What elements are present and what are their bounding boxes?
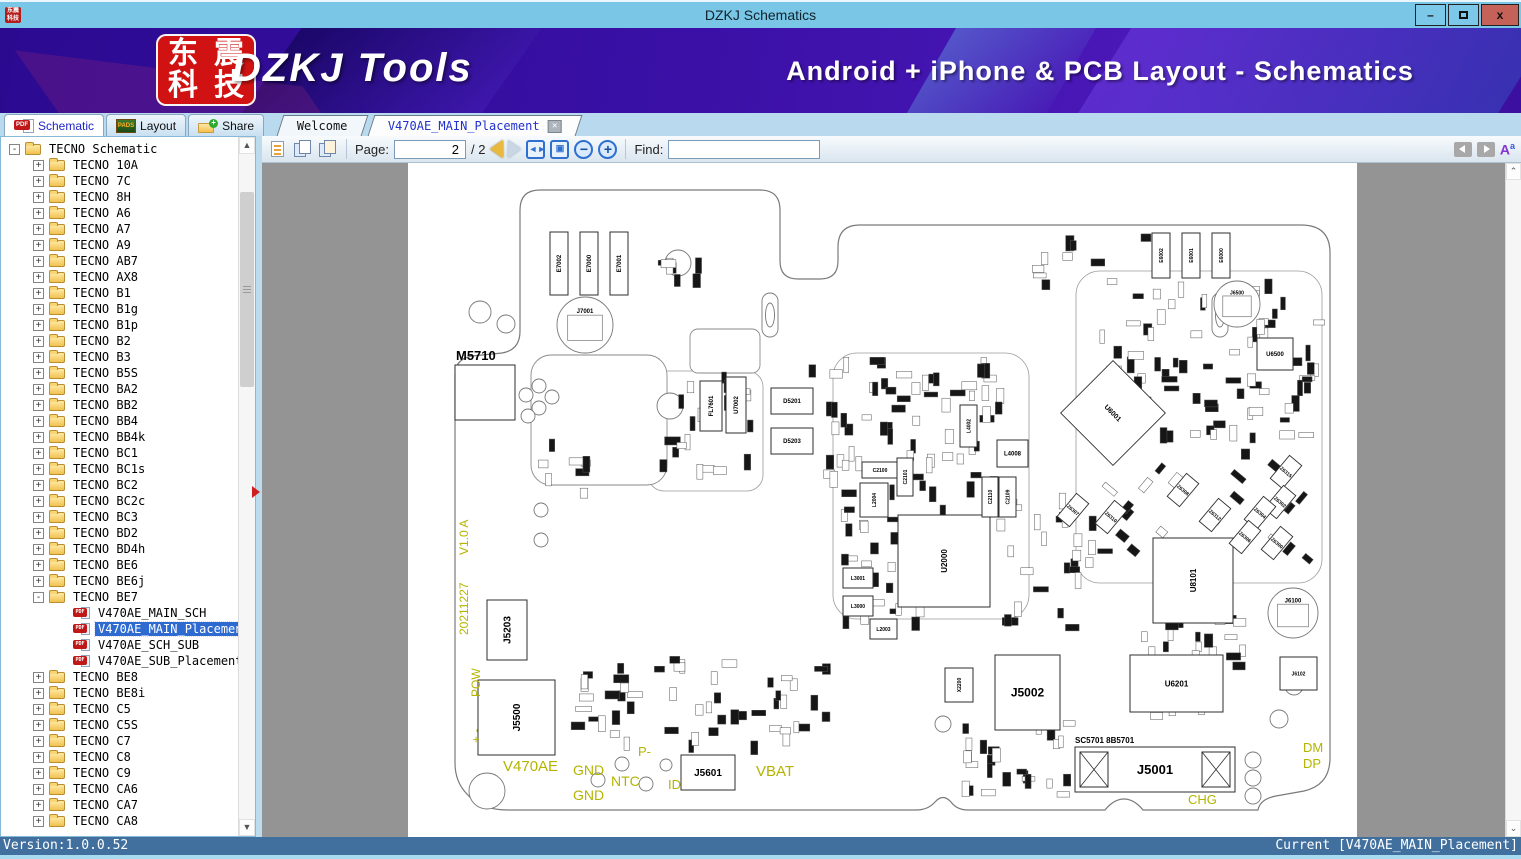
tree: -TECNO Schematic+TECNO 10A+TECNO 7C+TECN… xyxy=(1,141,238,836)
pdf-icon: PDF xyxy=(14,119,34,133)
folder-icon xyxy=(49,464,65,475)
tree-item-tecno-8h[interactable]: +TECNO 8H xyxy=(1,189,238,205)
expand-icon[interactable]: + xyxy=(33,768,44,779)
tree-item-tecno-c5[interactable]: +TECNO C5 xyxy=(1,701,238,717)
share-folder-icon: + xyxy=(198,119,218,133)
svg-text:DP: DP xyxy=(1303,756,1321,771)
expand-icon[interactable]: + xyxy=(33,496,44,507)
page-total: / 2 xyxy=(471,142,485,157)
svg-text:+ -: + - xyxy=(469,729,483,743)
expand-icon[interactable]: + xyxy=(33,208,44,219)
svg-text:20211227: 20211227 xyxy=(457,582,471,635)
tree-item-tecno-c9[interactable]: +TECNO C9 xyxy=(1,765,238,781)
expand-icon[interactable]: + xyxy=(33,320,44,331)
expand-icon[interactable]: + xyxy=(33,432,44,443)
svg-text:FL7601: FL7601 xyxy=(709,395,715,416)
expand-icon[interactable]: + xyxy=(33,192,44,203)
snapshot-tool-icon[interactable] xyxy=(293,139,313,159)
svg-text:J6500: J6500 xyxy=(1230,290,1244,296)
svg-text:GND: GND xyxy=(573,762,604,778)
folder-icon xyxy=(49,256,65,267)
doc-tab-v470ae_main_placement[interactable]: V470AE_MAIN_Placement✕ xyxy=(367,115,582,136)
svg-text:L4008: L4008 xyxy=(1004,452,1022,458)
brand-banner: 东震 科技 DZKJ Tools Android + iPhone & PCB … xyxy=(0,28,1521,113)
tree-item-tecno-bc2c[interactable]: +TECNO BC2c xyxy=(1,493,238,509)
svg-text:D5203: D5203 xyxy=(783,439,801,445)
collapse-icon[interactable]: - xyxy=(33,592,44,603)
find-label: Find: xyxy=(634,142,663,157)
zoom-in-button[interactable]: + xyxy=(598,140,617,159)
tree-item-tecno-be8[interactable]: +TECNO BE8 xyxy=(1,669,238,685)
folder-icon xyxy=(49,528,65,539)
tab-layout[interactable]: PADSLayout xyxy=(106,114,186,136)
folder-icon xyxy=(49,752,65,763)
viewer-scrollbar[interactable]: ⌃ ⌄ xyxy=(1505,163,1521,837)
folder-icon xyxy=(49,480,65,491)
svg-text:D5201: D5201 xyxy=(783,399,801,405)
tree-item-tecno-bc3[interactable]: +TECNO BC3 xyxy=(1,509,238,525)
expand-icon[interactable]: + xyxy=(33,288,44,299)
doc-tab-welcome[interactable]: Welcome xyxy=(277,115,368,136)
svg-text:J5500: J5500 xyxy=(512,703,523,731)
tab-share[interactable]: +Share xyxy=(188,114,264,136)
expand-icon[interactable]: + xyxy=(33,816,44,827)
svg-text:V1.0 A: V1.0 A xyxy=(457,520,471,555)
tree-item-tecno-be8i[interactable]: +TECNO BE8i xyxy=(1,685,238,701)
tree-item-tecno-a9[interactable]: +TECNO A9 xyxy=(1,237,238,253)
folder-icon xyxy=(49,400,65,411)
folder-icon xyxy=(49,800,65,811)
svg-text:U8101: U8101 xyxy=(1189,568,1198,592)
tree-item-tecno-10a[interactable]: +TECNO 10A xyxy=(1,157,238,173)
ribbon-tabs: PDFSchematicPADSLayout+Share xyxy=(4,114,266,136)
expand-icon[interactable]: + xyxy=(33,544,44,555)
tree-item-tecno-b3[interactable]: +TECNO B3 xyxy=(1,349,238,365)
svg-text:U2000: U2000 xyxy=(940,549,949,573)
maximize-button[interactable] xyxy=(1448,4,1479,26)
folder-icon xyxy=(49,224,65,235)
tree-item-v470ae-sub-placement[interactable]: PDFV470AE_SUB_Placement xyxy=(1,653,238,669)
svg-text:J5203: J5203 xyxy=(503,616,514,644)
find-input[interactable] xyxy=(668,140,820,159)
svg-text:M5710: M5710 xyxy=(456,348,496,363)
expand-icon[interactable]: + xyxy=(33,560,44,571)
svg-text:C2101: C2101 xyxy=(903,469,909,484)
folder-icon xyxy=(49,272,65,283)
status-bar: Version:1.0.0.52 Current [V470AE_MAIN_Pl… xyxy=(0,837,1521,855)
tree-item-tecno-b1g[interactable]: +TECNO B1g xyxy=(1,301,238,317)
tree-item-tecno-bc2[interactable]: +TECNO BC2 xyxy=(1,477,238,493)
close-button[interactable]: x xyxy=(1481,4,1519,26)
svg-text:E6001: E6001 xyxy=(1189,248,1195,263)
tree-item-tecno-ba2[interactable]: +TECNO BA2 xyxy=(1,381,238,397)
next-page-button[interactable] xyxy=(508,140,521,158)
expand-icon[interactable]: + xyxy=(33,800,44,811)
expand-icon[interactable]: + xyxy=(33,736,44,747)
expand-icon[interactable]: + xyxy=(33,448,44,459)
tree-item-tecno-b1[interactable]: +TECNO B1 xyxy=(1,285,238,301)
previous-page-button[interactable] xyxy=(490,140,503,158)
expand-icon[interactable]: + xyxy=(33,240,44,251)
page-label: Page: xyxy=(355,142,389,157)
expand-icon[interactable]: + xyxy=(33,384,44,395)
tree-item-tecno-ca7[interactable]: +TECNO CA7 xyxy=(1,797,238,813)
folder-icon xyxy=(49,304,65,315)
current-document-text: Current [V470AE_MAIN_Placement] xyxy=(1275,837,1518,855)
minimize-button[interactable]: – xyxy=(1415,4,1446,26)
viewer-scroll-down-icon[interactable]: ⌄ xyxy=(1506,820,1521,837)
close-icon: x xyxy=(1497,8,1504,22)
pdf-viewer[interactable]: E7002E7000E7001FL7601U7002D5201D5203J520… xyxy=(262,163,1521,837)
svg-text:J5002: J5002 xyxy=(1011,686,1045,700)
tree-item-tecno-bc1[interactable]: +TECNO BC1 xyxy=(1,445,238,461)
folder-icon xyxy=(49,496,65,507)
folder-icon xyxy=(49,192,65,203)
folder-icon xyxy=(49,320,65,331)
svg-text:X2200: X2200 xyxy=(957,678,963,693)
svg-text:NTC: NTC xyxy=(611,773,640,789)
expand-icon[interactable]: + xyxy=(33,720,44,731)
tree-item-v470ae-main-sch[interactable]: PDFV470AE_MAIN_SCH xyxy=(1,605,238,621)
find-next-button[interactable] xyxy=(1477,142,1495,157)
folder-icon xyxy=(49,688,65,699)
pdf-file-icon: PDF xyxy=(73,607,90,619)
folder-icon xyxy=(49,432,65,443)
svg-text:U6201: U6201 xyxy=(1165,679,1189,688)
pdf-toolbar: Page: / 2 ◄► ▣ − + Find: Aa xyxy=(262,136,1521,163)
tree-item-tecno-bc1s[interactable]: +TECNO BC1s xyxy=(1,461,238,477)
folder-icon xyxy=(49,448,65,459)
svg-text:CHG: CHG xyxy=(1188,792,1217,807)
pcb-placement-drawing: E7002E7000E7001FL7601U7002D5201D5203J520… xyxy=(408,163,1357,837)
tree-item-tecno-c8[interactable]: +TECNO C8 xyxy=(1,749,238,765)
expand-icon[interactable]: + xyxy=(33,336,44,347)
svg-text:J5601: J5601 xyxy=(694,768,722,779)
fit-page-button[interactable]: ▣ xyxy=(550,140,569,159)
zoom-out-button[interactable]: − xyxy=(574,140,593,159)
collapse-icon[interactable]: - xyxy=(9,144,20,155)
folder-icon xyxy=(49,176,65,187)
svg-text:J5001: J5001 xyxy=(1137,762,1173,777)
expand-icon[interactable]: + xyxy=(33,784,44,795)
svg-text:E7002: E7002 xyxy=(557,254,563,272)
folder-icon xyxy=(49,560,65,571)
svg-text:C2110: C2110 xyxy=(988,490,994,505)
folder-icon xyxy=(49,784,65,795)
expand-icon[interactable]: + xyxy=(33,272,44,283)
svg-text:J7001: J7001 xyxy=(577,309,594,315)
title-bar: 东震科技 DZKJ Schematics – x xyxy=(0,0,1521,28)
tab-schematic[interactable]: PDFSchematic xyxy=(4,114,104,136)
tab-strip: PDFSchematicPADSLayout+Share WelcomeV470… xyxy=(0,113,1521,136)
pdf-file-icon: PDF xyxy=(73,623,90,635)
folder-icon xyxy=(49,352,65,363)
svg-text:SC5701 8B5701: SC5701 8B5701 xyxy=(1075,736,1135,745)
tree-item-tecno-bd4h[interactable]: +TECNO BD4h xyxy=(1,541,238,557)
folder-icon xyxy=(49,768,65,779)
text-select-tool-icon[interactable] xyxy=(268,139,288,159)
expand-icon[interactable]: + xyxy=(33,528,44,539)
pdf-file-icon: PDF xyxy=(73,639,90,651)
expand-icon[interactable]: + xyxy=(33,672,44,683)
tree-item-tecno-c7[interactable]: +TECNO C7 xyxy=(1,733,238,749)
tree-item-tecno-7c[interactable]: +TECNO 7C xyxy=(1,173,238,189)
doc-tabs: WelcomeV470AE_MAIN_Placement✕ xyxy=(280,115,584,136)
maximize-icon xyxy=(1459,11,1468,19)
svg-text:V470AE: V470AE xyxy=(503,758,558,775)
app-name: DZKJ Tools xyxy=(232,46,473,91)
tree-item-tecno-schematic[interactable]: -TECNO Schematic xyxy=(1,141,238,157)
bottom-strip xyxy=(0,855,1521,859)
tree-item-v470ae-main-placement[interactable]: PDFV470AE_MAIN_Placement xyxy=(1,621,238,637)
folder-icon xyxy=(49,336,65,347)
svg-text:U6500: U6500 xyxy=(1266,352,1284,358)
tree-item-tecno-ca8[interactable]: +TECNO CA8 xyxy=(1,813,238,829)
version-text: Version:1.0.0.52 xyxy=(3,837,128,855)
tree-item-tecno-bb2[interactable]: +TECNO BB2 xyxy=(1,397,238,413)
folder-icon xyxy=(49,720,65,731)
expand-icon[interactable]: + xyxy=(33,352,44,363)
tree-item-tecno-c5s[interactable]: +TECNO C5S xyxy=(1,717,238,733)
expand-icon[interactable]: + xyxy=(33,416,44,427)
svg-text:P-: P- xyxy=(638,744,651,759)
svg-text:L2003: L2003 xyxy=(876,627,890,633)
expand-icon[interactable]: + xyxy=(33,688,44,699)
tree-item-tecno-bd2[interactable]: +TECNO BD2 xyxy=(1,525,238,541)
folder-icon xyxy=(49,160,65,171)
tree-item-tecno-be6j[interactable]: +TECNO BE6j xyxy=(1,573,238,589)
tab-close-icon[interactable]: ✕ xyxy=(547,120,561,133)
folder-icon xyxy=(49,512,65,523)
svg-text:C2100: C2100 xyxy=(873,468,888,474)
find-previous-button[interactable] xyxy=(1454,142,1472,157)
svg-text:C2109: C2109 xyxy=(1005,489,1011,504)
tree-item-tecno-be6[interactable]: +TECNO BE6 xyxy=(1,557,238,573)
pdf-page: E7002E7000E7001FL7601U7002D5201D5203J520… xyxy=(408,163,1357,837)
scroll-up-icon[interactable]: ▲ xyxy=(239,137,255,154)
folder-icon xyxy=(49,384,65,395)
svg-text:J6102: J6102 xyxy=(1292,671,1306,677)
svg-text:DM: DM xyxy=(1303,740,1323,755)
tree-item-tecno-ax8[interactable]: +TECNO AX8 xyxy=(1,269,238,285)
tree-item-v470ae-sch-sub[interactable]: PDFV470AE_SCH_SUB xyxy=(1,637,238,653)
match-case-button[interactable]: Aa xyxy=(1500,141,1515,158)
expand-icon[interactable]: + xyxy=(33,160,44,171)
svg-text:ID: ID xyxy=(668,777,681,792)
scroll-down-icon[interactable]: ▼ xyxy=(239,819,255,836)
svg-text:E6000: E6000 xyxy=(1219,248,1225,263)
folder-icon xyxy=(49,816,65,827)
folder-icon xyxy=(49,736,65,747)
tree-scrollbar-thumb[interactable] xyxy=(240,192,254,387)
page-number-input[interactable] xyxy=(394,140,466,159)
folder-icon xyxy=(49,208,65,219)
svg-text:J6100: J6100 xyxy=(1285,599,1302,605)
expand-icon[interactable]: + xyxy=(33,512,44,523)
window-title: DZKJ Schematics xyxy=(0,7,1521,23)
expand-icon[interactable]: + xyxy=(33,480,44,491)
svg-text:L2004: L2004 xyxy=(872,493,878,507)
pdf-file-icon: PDF xyxy=(73,655,90,667)
tree-item-tecno-bb4k[interactable]: +TECNO BB4k xyxy=(1,429,238,445)
folder-icon xyxy=(25,144,41,155)
svg-text:L3001: L3001 xyxy=(851,576,865,582)
banner-subtitle: Android + iPhone & PCB Layout - Schemati… xyxy=(760,56,1440,87)
expand-icon[interactable]: + xyxy=(33,752,44,763)
folder-icon xyxy=(49,704,65,715)
schematic-tree-panel: -TECNO Schematic+TECNO 10A+TECNO 7C+TECN… xyxy=(0,136,256,837)
expand-icon[interactable]: + xyxy=(33,464,44,475)
svg-text:U7002: U7002 xyxy=(734,396,740,414)
tree-item-tecno-b2[interactable]: +TECNO B2 xyxy=(1,333,238,349)
tree-item-tecno-a6[interactable]: +TECNO A6 xyxy=(1,205,238,221)
tree-item-tecno-ca6[interactable]: +TECNO CA6 xyxy=(1,781,238,797)
fit-width-button[interactable]: ◄► xyxy=(526,140,545,159)
viewer-scroll-up-icon[interactable]: ⌃ xyxy=(1506,163,1521,180)
folder-icon xyxy=(49,544,65,555)
expand-icon[interactable]: + xyxy=(33,368,44,379)
tree-item-tecno-b5s[interactable]: +TECNO B5S xyxy=(1,365,238,381)
folder-icon xyxy=(49,240,65,251)
tree-item-tecno-a7[interactable]: +TECNO A7 xyxy=(1,221,238,237)
expand-icon[interactable]: + xyxy=(33,224,44,235)
clone-page-tool-icon[interactable] xyxy=(318,139,338,159)
expand-icon[interactable]: + xyxy=(33,400,44,411)
folder-icon xyxy=(49,416,65,427)
svg-text:E7001: E7001 xyxy=(617,254,623,272)
folder-icon xyxy=(49,592,65,603)
minimize-icon: – xyxy=(1427,8,1434,22)
splitter-collapse-icon[interactable] xyxy=(252,486,260,498)
expand-icon[interactable]: + xyxy=(33,576,44,587)
tree-item-tecno-b1p[interactable]: +TECNO B1p xyxy=(1,317,238,333)
expand-icon[interactable]: + xyxy=(33,704,44,715)
tree-item-tecno-be7[interactable]: -TECNO BE7 xyxy=(1,589,238,605)
tree-item-tecno-bb4[interactable]: +TECNO BB4 xyxy=(1,413,238,429)
svg-text:E7000: E7000 xyxy=(587,254,593,272)
folder-icon xyxy=(49,576,65,587)
pads-icon: PADS xyxy=(116,119,136,133)
svg-text:VBAT: VBAT xyxy=(756,763,794,780)
svg-text:GND: GND xyxy=(573,787,604,803)
svg-text:E6002: E6002 xyxy=(1159,248,1165,263)
expand-icon[interactable]: + xyxy=(33,256,44,267)
svg-text:L3000: L3000 xyxy=(851,604,865,610)
svg-text:POW: POW xyxy=(469,668,483,697)
folder-icon xyxy=(49,672,65,683)
expand-icon[interactable]: + xyxy=(33,304,44,315)
folder-icon xyxy=(49,368,65,379)
folder-icon xyxy=(49,288,65,299)
tree-item-tecno-ab7[interactable]: +TECNO AB7 xyxy=(1,253,238,269)
expand-icon[interactable]: + xyxy=(33,176,44,187)
svg-text:L4002: L4002 xyxy=(966,419,972,433)
